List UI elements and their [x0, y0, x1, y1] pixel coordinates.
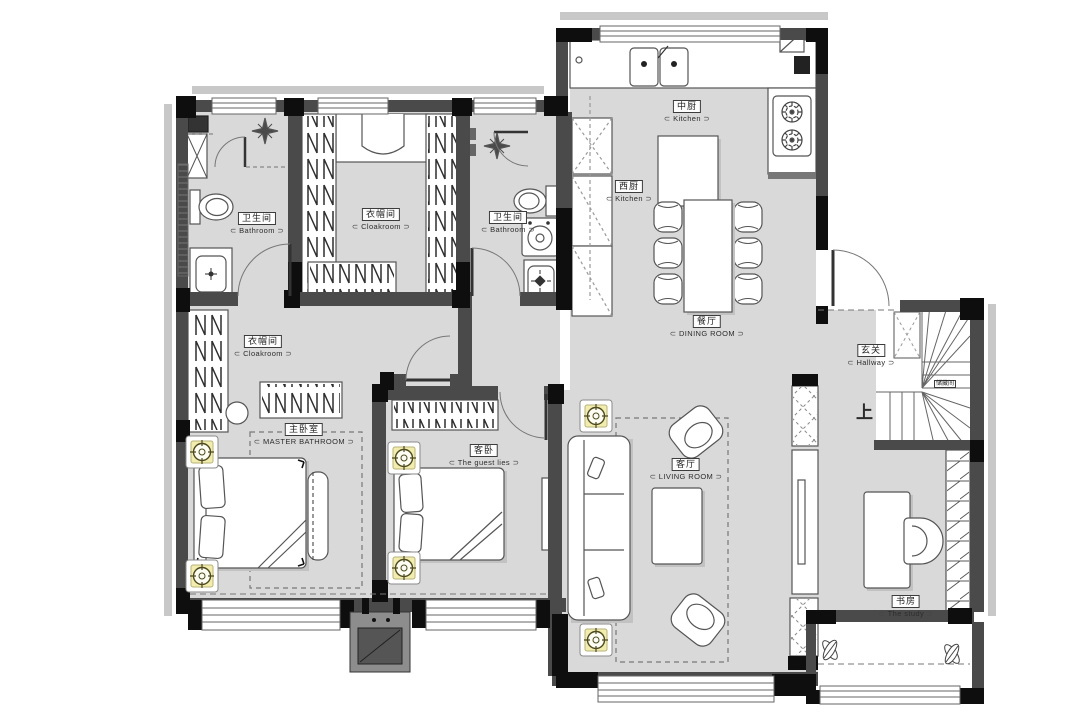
entry-door-swing [833, 250, 889, 306]
bookshelf [947, 451, 969, 611]
room-label-master: 主卧室 MASTER BATHROOM [254, 420, 354, 446]
label-en: Kitchen [664, 115, 710, 123]
label-en: The study [879, 610, 934, 618]
room-label-kitchen-mid: 中厨 Kitchen [664, 97, 710, 123]
fridge-icon [572, 118, 612, 174]
floor-plan: 卫生间 Bathroom 衣帽间 Cloakroom 卫生间 Bathroom … [0, 0, 1080, 720]
label-cn: 储藏间 [934, 380, 956, 388]
label-cn: 客卧 [470, 444, 498, 457]
hanger-rack-icon [394, 402, 496, 428]
dining-room [654, 200, 762, 315]
label-cn: 餐厅 [693, 315, 721, 328]
room-label-storage: 储藏间 [934, 373, 956, 389]
socket-symbol-icon [186, 560, 218, 592]
hanger-rack-icon [190, 312, 226, 430]
room-label-study: 书房 The study [879, 592, 934, 618]
label-cn: 衣帽间 [244, 335, 282, 348]
label-en: LIVING ROOM [650, 473, 723, 481]
label-cn: 西厨 [615, 180, 643, 193]
room-label-dining: 餐厅 DINING ROOM [670, 312, 744, 338]
label-cn: 书房 [892, 595, 920, 608]
label-en: The guest lies [449, 459, 520, 467]
water-heater-icon [188, 116, 208, 132]
socket-symbol-icon [388, 552, 420, 584]
dining-table [684, 200, 732, 312]
room-label-living: 客厅 LIVING ROOM [650, 455, 723, 481]
label-en: Kitchen [606, 195, 652, 203]
room-label-cloakroom-1: 衣帽间 Cloakroom [352, 205, 410, 231]
plant-icon [942, 642, 962, 666]
bench [308, 472, 328, 560]
label-en: MASTER BATHROOM [254, 438, 354, 446]
coffee-table [652, 488, 702, 564]
west-kitchen-cabinets [572, 96, 612, 316]
label-cn: 中厨 [673, 100, 701, 113]
label-en: Cloakroom [234, 350, 292, 358]
drape-icon [362, 114, 404, 154]
label-cn: 衣帽间 [362, 208, 400, 221]
hanger-rack-icon [262, 384, 340, 416]
pillow-icon [199, 515, 226, 559]
socket-symbol-icon [580, 400, 612, 432]
label-cn: 玄关 [857, 344, 885, 357]
stool-icon [226, 402, 248, 424]
label-en: Bathroom [230, 227, 284, 235]
socket-symbol-icon [388, 442, 420, 474]
room-label-hallway: 玄关 Hallway [847, 341, 894, 367]
desk-chair [904, 518, 943, 564]
room-label-cloakroom-2: 衣帽间 Cloakroom [234, 332, 292, 358]
pillow-icon [399, 513, 424, 552]
room-label-kitchen-west: 西厨 Kitchen [606, 177, 652, 203]
room-label-bathroom-1: 卫生间 Bathroom [230, 209, 284, 235]
label-en: Hallway [847, 359, 894, 367]
pillow-icon [199, 465, 226, 509]
desk [864, 492, 910, 588]
kitchen-island [658, 136, 718, 206]
hallway-cabinet [894, 312, 920, 358]
label-en: Bathroom [481, 226, 535, 234]
balcony [820, 638, 962, 666]
label-en: DINING ROOM [670, 330, 744, 338]
stairs-up-mark: 上 [856, 398, 873, 423]
label-cn: 客厅 [672, 458, 700, 471]
pillow-icon [399, 473, 424, 512]
socket-symbol-icon [186, 436, 218, 468]
label-cn: 卫生间 [489, 211, 527, 224]
label-cn: 卫生间 [238, 212, 276, 225]
label-cn: 主卧室 [285, 423, 323, 436]
socket-symbol-icon [580, 624, 612, 656]
hanger-rack-icon [428, 116, 458, 300]
label-en: Cloakroom [352, 223, 410, 231]
plant-icon [820, 638, 840, 662]
room-label-bathroom-2: 卫生间 Bathroom [481, 208, 535, 234]
plumbing-hatch [178, 164, 188, 276]
room-label-guest: 客卧 The guest lies [449, 441, 520, 467]
toilet-tank-icon [546, 186, 557, 216]
